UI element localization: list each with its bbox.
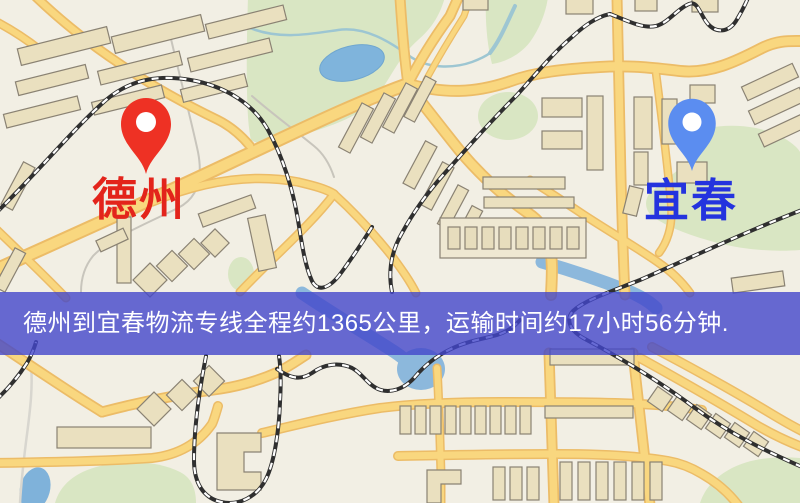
destination-city-label: 宜春 bbox=[644, 178, 738, 223]
origin-city-label: 德州 bbox=[92, 177, 186, 222]
route-info-banner: 德州到宜春物流专线全程约1365公里，运输时间约17小时56分钟. bbox=[0, 292, 800, 355]
route-info-text: 德州到宜春物流专线全程约1365公里，运输时间约17小时56分钟. bbox=[0, 312, 729, 336]
map-art bbox=[0, 0, 800, 503]
map-canvas[interactable]: 德州 宜春 德州到宜春物流专线全程约1365公里，运输时间约17小时56分钟. bbox=[0, 0, 800, 503]
